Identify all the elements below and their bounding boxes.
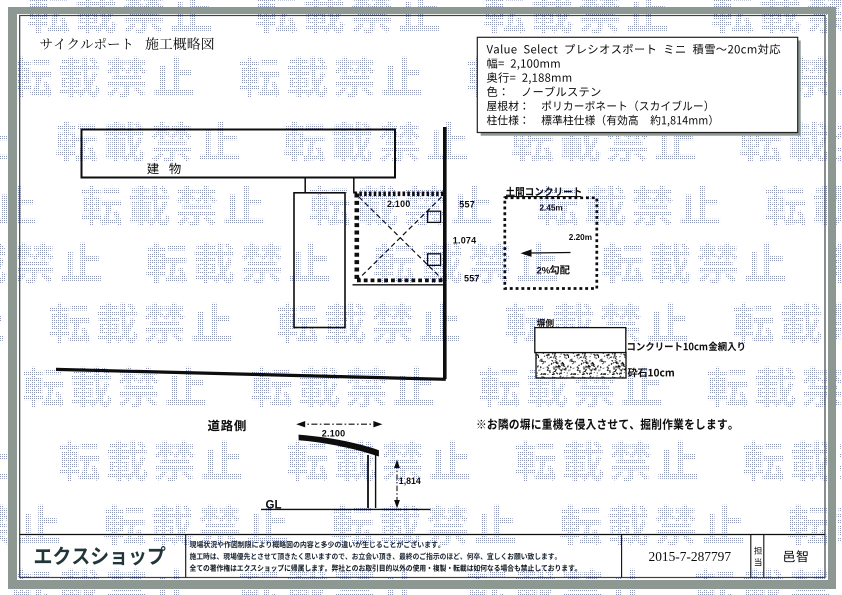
svg-text:1,814: 1,814 (399, 476, 421, 486)
svg-text:557: 557 (459, 200, 475, 210)
svg-text:2.100: 2.100 (322, 428, 346, 438)
svg-text:2.20m: 2.20m (569, 233, 592, 242)
svg-text:1.074: 1.074 (453, 236, 477, 246)
svg-text:557: 557 (464, 274, 480, 284)
svg-text:2015-7-287797: 2015-7-287797 (649, 549, 732, 564)
svg-text:2.100: 2.100 (387, 199, 411, 209)
svg-text:2.45m: 2.45m (540, 204, 563, 213)
svg-text:2%: 2% (537, 266, 551, 277)
